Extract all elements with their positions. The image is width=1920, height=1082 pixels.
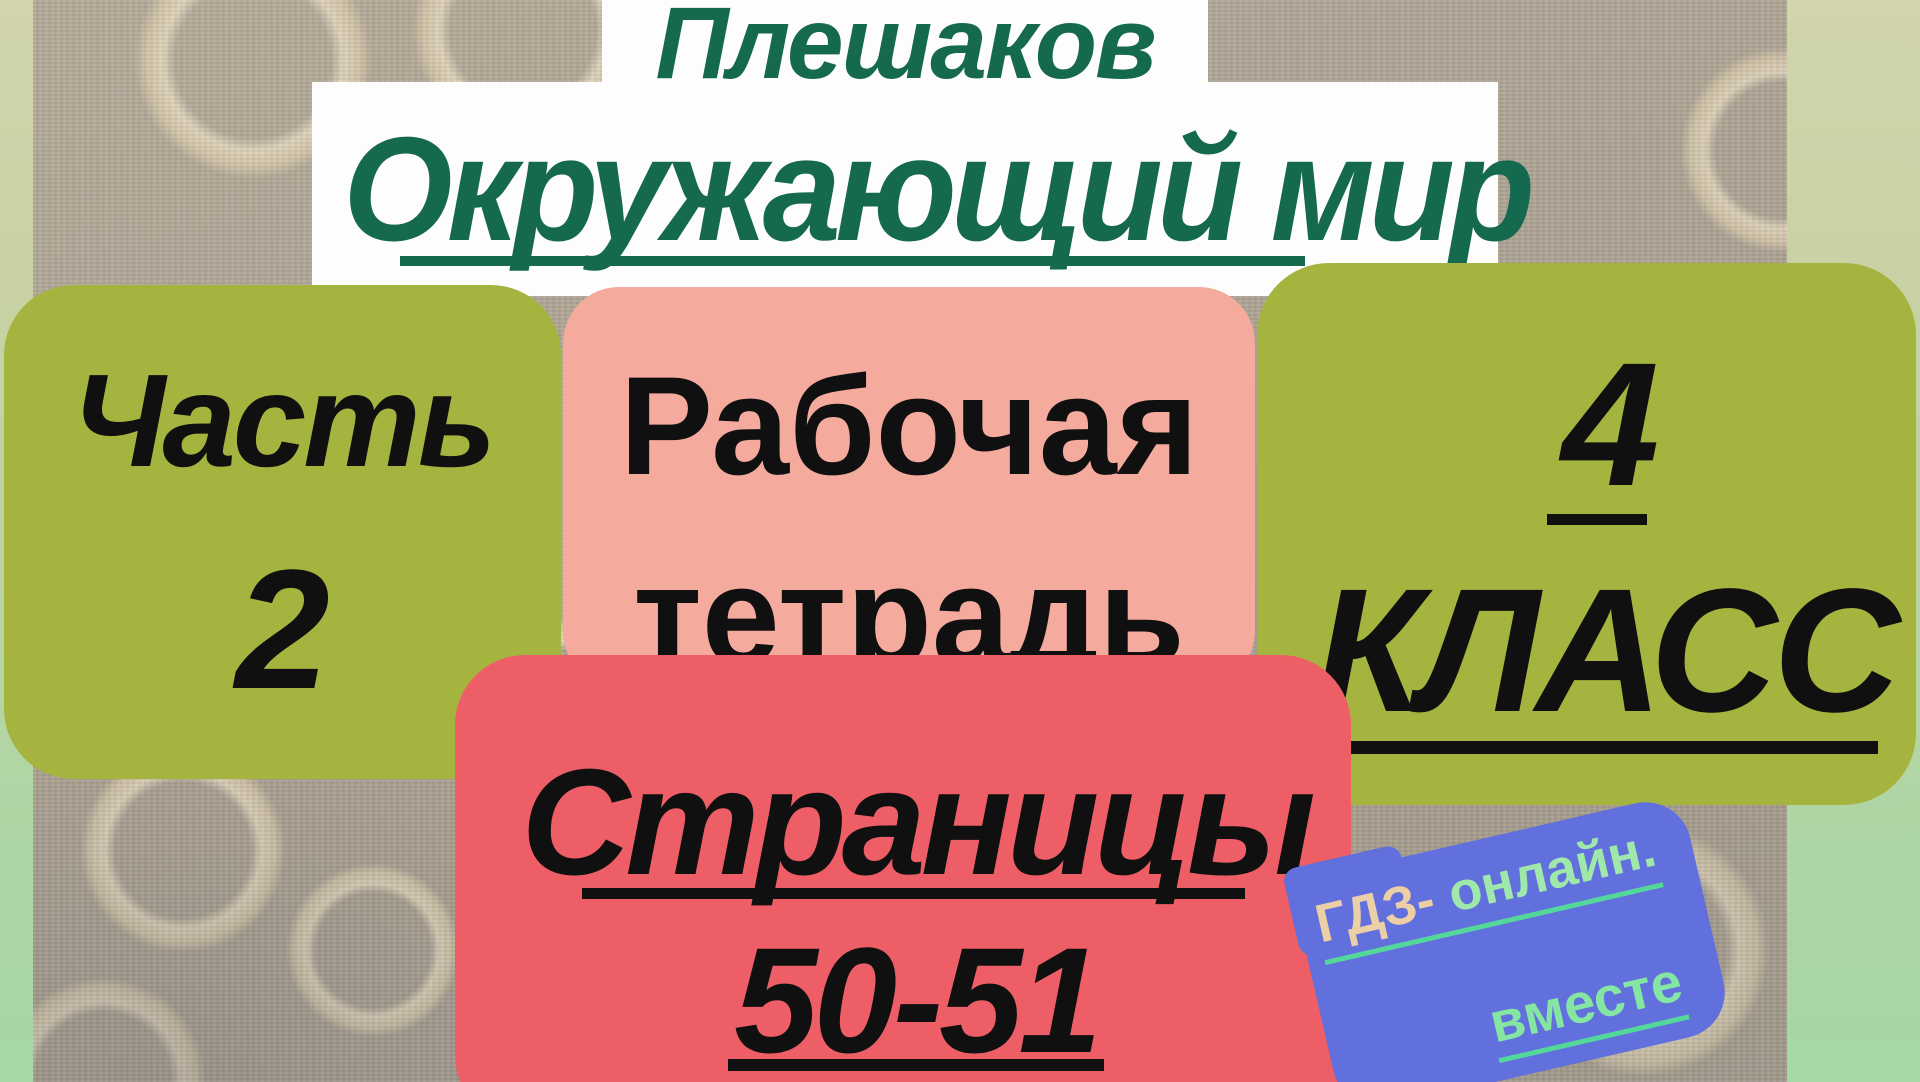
subject-title-text: Окружающий мир: [343, 116, 1529, 264]
subject-title: Окружающий мир: [312, 116, 1498, 264]
pages-range-underline: [728, 1059, 1104, 1071]
workbook-label-line1: Рабочая: [563, 356, 1255, 496]
pages-range: 50-51: [473, 925, 1359, 1075]
author-title: Плешаков: [602, 0, 1208, 94]
part-label: Часть: [4, 355, 561, 487]
pages-label-underline: [582, 888, 1245, 899]
pages-label: Страницы: [473, 746, 1359, 897]
subject-underline: [400, 256, 1305, 266]
thumbnail-canvas: Плешаков Окружающий мир Часть 2 Рабочая …: [0, 0, 1920, 1082]
grade-label-underline: [1326, 741, 1878, 754]
grade-number-underline: [1547, 514, 1647, 525]
grade-number: 4: [1284, 337, 1920, 513]
grade-label: КЛАСС: [1279, 563, 1920, 739]
